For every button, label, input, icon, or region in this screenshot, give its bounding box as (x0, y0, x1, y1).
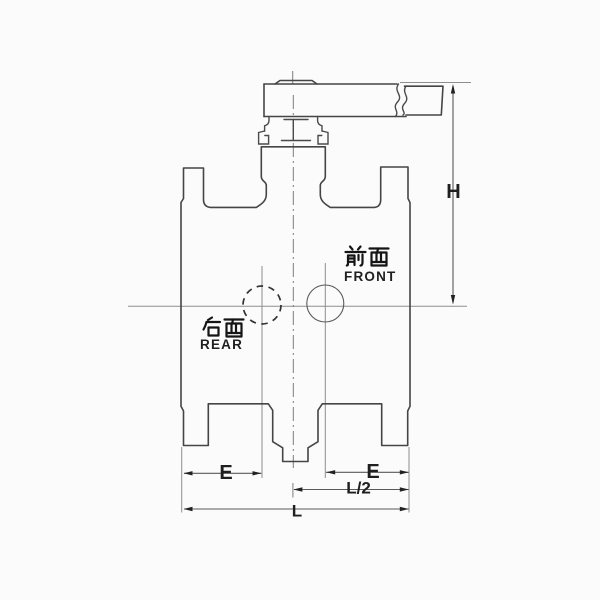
valve-body-outline (181, 147, 410, 462)
h-arrow-down (451, 295, 455, 305)
gland-ear-left (265, 117, 269, 132)
dimension-l-half: L/2 (293, 479, 408, 498)
break-line-right (402, 86, 406, 115)
bonnet-gland (259, 117, 328, 145)
l2-arrow-left (293, 487, 302, 491)
l-arrow-left (184, 507, 193, 511)
centerlines (128, 71, 467, 498)
bonnet-flange-left (259, 131, 269, 144)
h-arrow-up (451, 84, 455, 94)
front-label-cn-glyphs (346, 247, 389, 266)
dimension-l: L (184, 502, 409, 521)
e-left-arrow-right (253, 471, 262, 475)
break-line-left (395, 84, 399, 117)
e-left-dim-label: E (219, 462, 232, 484)
rear-label-cn-glyphs (204, 318, 244, 337)
h-dim-label: H (446, 181, 460, 203)
l-dim-label: L (292, 502, 302, 521)
bonnet-flange-right (318, 131, 328, 144)
handle-end-cap (405, 86, 444, 115)
gland-ear-right (318, 117, 322, 132)
l2-dim-label: L/2 (346, 479, 371, 498)
label-front: FRONT (344, 247, 397, 285)
e-right-arrow-right (400, 470, 409, 474)
screenshot-stage: H E E L/2 L (0, 0, 600, 600)
front-label-en: FRONT (344, 269, 397, 284)
e-right-arrow-left (326, 470, 335, 474)
rear-label-en: REAR (200, 337, 243, 352)
l-arrow-right (400, 507, 409, 511)
dimension-e-left: E (184, 462, 262, 484)
valve-technical-drawing: H E E L/2 L (0, 0, 600, 600)
handle-lever (264, 81, 443, 117)
l2-arrow-right (400, 487, 409, 491)
stem-section-symbol (282, 120, 311, 141)
e-left-arrow-left (184, 471, 193, 475)
label-rear: REAR (200, 318, 244, 353)
